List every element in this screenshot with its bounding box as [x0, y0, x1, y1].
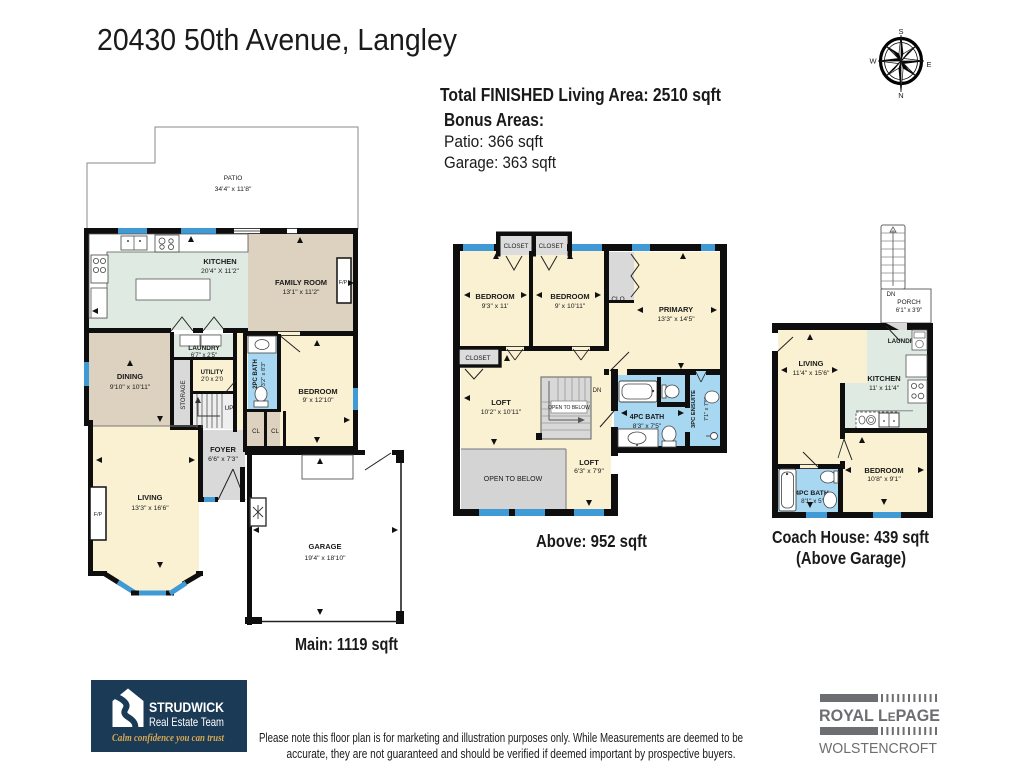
svg-text:11'4" x 15'6": 11'4" x 15'6"	[793, 370, 830, 377]
svg-text:STORAGE: STORAGE	[181, 380, 187, 409]
svg-text:PRIMARY: PRIMARY	[659, 305, 693, 314]
svg-text:6'7" x 2'5": 6'7" x 2'5"	[191, 353, 217, 359]
svg-text:S: S	[898, 27, 903, 36]
svg-text:3'2" x 8'3": 3'2" x 8'3"	[261, 362, 267, 386]
svg-text:BEDROOM: BEDROOM	[475, 292, 514, 301]
svg-text:13'3" x 16'6": 13'3" x 16'6"	[131, 505, 169, 512]
svg-text:9' x 10'11": 9' x 10'11"	[555, 303, 586, 310]
svg-text:ROYAL LEPAGE: ROYAL LEPAGE	[819, 707, 940, 725]
svg-text:4PC BATH: 4PC BATH	[795, 490, 829, 497]
svg-text:10'2" x 10'11": 10'2" x 10'11"	[481, 409, 522, 416]
svg-text:DN: DN	[887, 292, 896, 298]
svg-text:GARAGE: GARAGE	[309, 542, 342, 551]
svg-text:Coach House: 439 sqft: Coach House: 439 sqft	[772, 527, 929, 547]
svg-text:4PC BATH: 4PC BATH	[630, 414, 664, 421]
svg-text:Bonus Areas:: Bonus Areas:	[444, 110, 544, 130]
svg-text:CL: CL	[271, 429, 279, 435]
svg-text:PATIO: PATIO	[224, 175, 243, 182]
svg-text:FOYER: FOYER	[210, 445, 236, 454]
svg-text:2PC BATH: 2PC BATH	[253, 359, 259, 389]
svg-text:Please note this floor plan is: Please note this floor plan is for marke…	[259, 731, 743, 745]
svg-text:LIVING: LIVING	[798, 359, 823, 368]
svg-text:LAUNDRY: LAUNDRY	[188, 345, 220, 352]
svg-text:UTILITY: UTILITY	[201, 370, 224, 376]
svg-text:CLOSET: CLOSET	[504, 243, 529, 250]
svg-text:LOFT: LOFT	[491, 398, 511, 407]
svg-text:W: W	[869, 57, 877, 66]
svg-text:6'6" x 7'3": 6'6" x 7'3"	[208, 456, 238, 463]
svg-text:LOFT: LOFT	[579, 458, 599, 467]
svg-text:F/P: F/P	[339, 280, 348, 286]
svg-text:BEDROOM: BEDROOM	[864, 466, 903, 475]
svg-text:FAMILY ROOM: FAMILY ROOM	[275, 278, 327, 287]
svg-text:19'4" x 18'10": 19'4" x 18'10"	[304, 555, 346, 562]
svg-text:Garage: 363 sqft: Garage: 363 sqft	[444, 153, 556, 172]
svg-text:9' x 12'10": 9' x 12'10"	[302, 397, 334, 404]
svg-text:OPEN TO BELOW: OPEN TO BELOW	[548, 405, 590, 411]
svg-text:Total FINISHED Living Area: 25: Total FINISHED Living Area: 2510 sqft	[440, 85, 721, 105]
svg-text:OPEN TO BELOW: OPEN TO BELOW	[484, 476, 543, 483]
svg-text:Above: 952 sqft: Above: 952 sqft	[536, 531, 647, 551]
svg-text:6'3" x 7'9": 6'3" x 7'9"	[574, 468, 604, 475]
svg-text:20430 50th Avenue, Langley: 20430 50th Avenue, Langley	[97, 22, 457, 57]
svg-text:F/P: F/P	[94, 512, 103, 518]
svg-text:9'3" x 11': 9'3" x 11'	[482, 303, 509, 310]
svg-text:2'0 x 2'0: 2'0 x 2'0	[201, 377, 224, 383]
svg-text:Main: 1119 sqft: Main: 1119 sqft	[295, 634, 398, 654]
svg-text:13'1" x 11'2": 13'1" x 11'2"	[283, 289, 320, 296]
svg-text:Patio: 366 sqft: Patio: 366 sqft	[444, 132, 543, 151]
svg-text:N: N	[898, 91, 903, 100]
svg-text:6'1" x 3'9": 6'1" x 3'9"	[896, 308, 922, 314]
svg-text:LIVING: LIVING	[137, 493, 162, 502]
svg-text:STRUDWICK: STRUDWICK	[149, 699, 224, 715]
svg-text:(Above Garage): (Above Garage)	[796, 548, 906, 568]
svg-text:BEDROOM: BEDROOM	[298, 387, 337, 396]
svg-text:13'3" x 14'5": 13'3" x 14'5"	[657, 316, 695, 323]
svg-text:CLOSET: CLOSET	[465, 355, 490, 362]
svg-text:UP: UP	[224, 405, 233, 412]
svg-text:accurate, they are not guarant: accurate, they are not guaranteed and sh…	[287, 747, 736, 761]
svg-text:9'10" x 10'11": 9'10" x 10'11"	[110, 384, 151, 391]
svg-text:3PC ENSUITE: 3PC ENSUITE	[691, 390, 697, 428]
svg-text:PORCH: PORCH	[897, 299, 921, 306]
svg-text:11' x 11'4": 11' x 11'4"	[869, 385, 900, 392]
svg-text:20'4" X 11'2": 20'4" X 11'2"	[201, 268, 239, 275]
svg-text:34'4" x 11'8": 34'4" x 11'8"	[215, 186, 252, 193]
svg-text:10'8" x 9'1": 10'8" x 9'1"	[867, 476, 901, 483]
svg-text:CL: CL	[252, 429, 260, 435]
svg-text:WOLSTENCROFT: WOLSTENCROFT	[819, 741, 937, 757]
svg-text:BEDROOM: BEDROOM	[550, 292, 589, 301]
svg-text:Real Estate Team: Real Estate Team	[149, 715, 224, 729]
svg-text:DN: DN	[593, 388, 602, 394]
svg-text:CLOSET: CLOSET	[539, 243, 564, 250]
svg-text:KITCHEN: KITCHEN	[203, 257, 236, 266]
svg-text:Calm confidence you can trust: Calm confidence you can trust	[112, 732, 225, 744]
svg-text:KITCHEN: KITCHEN	[867, 374, 900, 383]
svg-text:E: E	[926, 60, 931, 69]
svg-text:DINING: DINING	[117, 372, 143, 381]
